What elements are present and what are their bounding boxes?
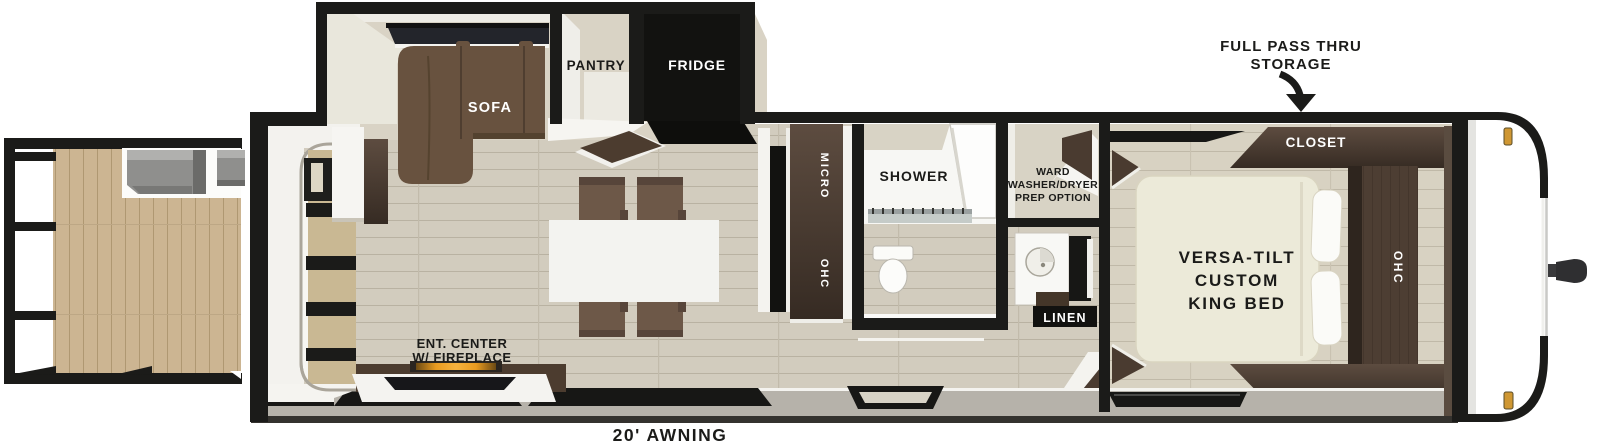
svg-text:WASHER/DRYER: WASHER/DRYER [1008, 179, 1098, 191]
svg-text:VERSA-TILT: VERSA-TILT [1179, 248, 1296, 267]
svg-text:PANTRY: PANTRY [567, 58, 626, 73]
svg-text:LINEN: LINEN [1043, 311, 1087, 325]
svg-text:CLOSET: CLOSET [1286, 135, 1347, 150]
svg-text:STORAGE: STORAGE [1251, 56, 1332, 73]
svg-text:MICRO: MICRO [818, 153, 830, 200]
svg-text:ENT. CENTER: ENT. CENTER [417, 336, 508, 351]
svg-text:OHC: OHC [1391, 251, 1405, 285]
svg-text:WARD: WARD [1036, 166, 1070, 178]
svg-text:KING BED: KING BED [1188, 294, 1286, 313]
svg-text:OHC: OHC [818, 259, 830, 289]
svg-text:SHOWER: SHOWER [880, 168, 949, 184]
svg-text:W/ FIREPLACE: W/ FIREPLACE [412, 350, 511, 365]
svg-text:PREP OPTION: PREP OPTION [1015, 192, 1091, 204]
svg-text:FULL PASS THRU: FULL PASS THRU [1220, 38, 1362, 55]
svg-text:SOFA: SOFA [468, 100, 512, 116]
svg-text:20' AWNING: 20' AWNING [613, 425, 728, 444]
svg-text:CUSTOM: CUSTOM [1195, 271, 1279, 290]
svg-text:FRIDGE: FRIDGE [668, 57, 726, 73]
